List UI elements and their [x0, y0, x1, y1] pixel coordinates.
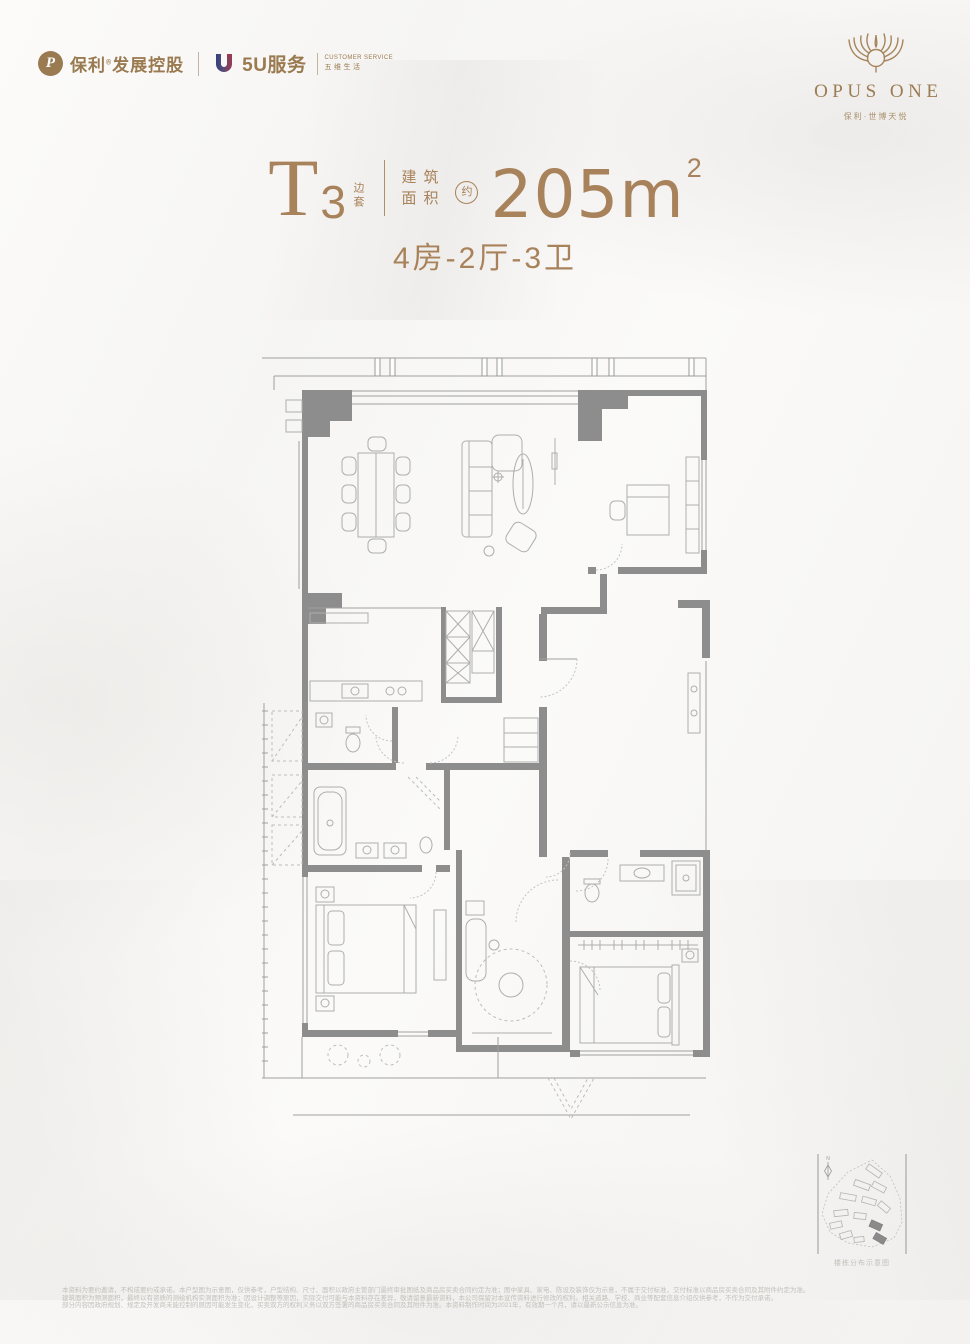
area-superscript: 2 [687, 155, 702, 182]
poly-brand-name: 保利®发展控股 [70, 51, 184, 76]
second-bathroom [576, 859, 700, 902]
phoenix-wings-icon [845, 30, 907, 76]
disclaimer-line: 本资料为要约邀请，不构成要约或承诺。本户型图为示意图，仅供参考，户型结构、尺寸、… [62, 1287, 908, 1295]
service-taglines: CUSTOMER SERVICE 五维生活 [317, 53, 393, 75]
second-bedroom [570, 949, 698, 1045]
powder-room [316, 713, 392, 752]
unit-letter: T [268, 156, 318, 220]
siteplan-caption: 楼栋分布示意图 [798, 1258, 926, 1268]
ac-equipment-bays [262, 400, 302, 1078]
highlighted-buildings [869, 1220, 887, 1245]
floorplan [258, 345, 712, 1135]
header-logos: P 保利®发展控股 5U服务 CUSTOMER SERVICE 五维生活 [38, 50, 393, 77]
disclaimer-line: 部分内容因政府规划、规定及开发商未能控制的原因可能发生变化，买卖双方的权利义务以… [62, 1302, 908, 1310]
bay-window [548, 1078, 594, 1119]
area-value: 205m [490, 169, 684, 220]
site-boundary [822, 1160, 902, 1247]
dining-table-and-chairs [342, 437, 410, 553]
unit-number: 3 [320, 185, 346, 220]
sofa-set [462, 435, 538, 556]
approx-circle: 约 [455, 181, 478, 204]
foyer-cabinet [688, 673, 700, 733]
poly-logo-icon: P [38, 51, 63, 76]
walk-in-closet-rail [578, 940, 698, 950]
project-brand-block: OPUS ONE 保利·世博天悦 [798, 30, 954, 122]
floorplan-drawing [258, 345, 712, 1135]
disclaimer-text: 本资料为要约邀请，不构成要约或承诺。本户型图为示意图，仅供参考，户型结构、尺寸、… [62, 1287, 908, 1310]
site-buildings [830, 1164, 891, 1243]
siteplan-panel: N [810, 1150, 914, 1258]
svg-text:N: N [826, 1156, 830, 1162]
unit-tag: 边套 [350, 182, 366, 218]
kitchen [310, 613, 422, 701]
poster-page: P 保利®发展控股 5U服务 CUSTOMER SERVICE 五维生活 [0, 0, 970, 1344]
tv-wall [552, 438, 557, 485]
area-label: 建筑 面积 [401, 167, 445, 211]
master-bathroom [314, 777, 440, 898]
room-layout-line: 4房-2厅-3卫 [393, 233, 577, 277]
compass-icon: N [825, 1156, 832, 1180]
entry-door-arc [539, 659, 577, 697]
title-divider [384, 160, 386, 216]
elevator-shafts [446, 611, 494, 683]
master-bedroom [316, 887, 446, 1011]
storage-cabinet [376, 718, 538, 763]
unit-title-block: T 3 边套 建筑 面积 约 205m 2 4房-2厅-3卫 [0, 148, 970, 277]
unit-title-row: T 3 边套 建筑 面积 约 205m 2 [268, 148, 702, 220]
canopy [262, 358, 706, 390]
project-name: OPUS ONE [810, 81, 943, 103]
service-brand-name: 5U服务 [242, 50, 306, 77]
project-subtitle: 保利·世博天悦 [844, 111, 909, 122]
service-tagline-cn: 五维生活 [324, 63, 393, 74]
round-rug-room [466, 853, 570, 1033]
study-furniture [596, 457, 699, 570]
service-tagline-en: CUSTOMER SERVICE [324, 54, 393, 63]
logo-divider [198, 52, 199, 76]
siteplan-drawing: N [810, 1150, 914, 1258]
5u-logo-icon [213, 53, 235, 75]
